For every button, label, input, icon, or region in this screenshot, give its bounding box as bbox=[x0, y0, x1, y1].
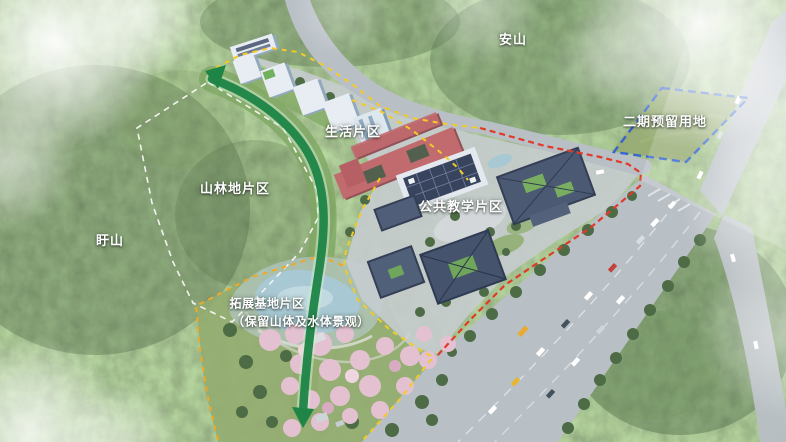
haze-overlay bbox=[0, 0, 786, 442]
aerial-render-canvas bbox=[0, 0, 786, 442]
site-plan-rendering: 安山 二期预留用地 生活片区 山林地片区 盱山 公共教学片区 拓展基地片区 （保… bbox=[0, 0, 786, 442]
